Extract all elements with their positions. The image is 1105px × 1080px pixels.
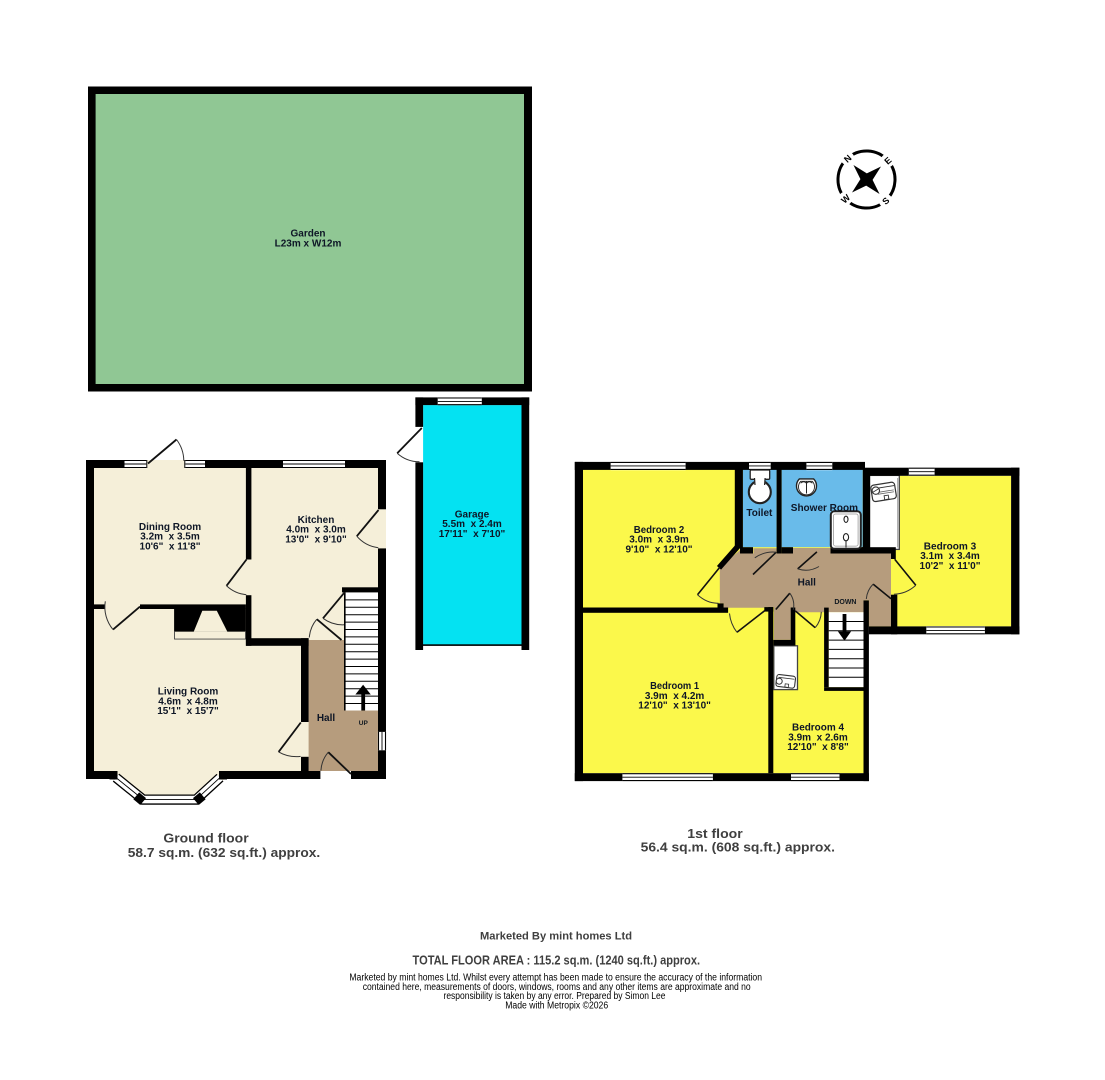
svg-text:Toilet: Toilet — [746, 508, 773, 519]
svg-text:Ground floor: Ground floor — [163, 831, 248, 846]
svg-text:12'10" x 13'10": 12'10" x 13'10" — [638, 701, 711, 712]
svg-text:TOTAL FLOOR AREA : 115.2 sq.m.: TOTAL FLOOR AREA : 115.2 sq.m. (1240 sq.… — [413, 953, 701, 967]
svg-text:Made with Metropix ©2026: Made with Metropix ©2026 — [505, 1001, 608, 1012]
svg-text:17'11" x 7'10": 17'11" x 7'10" — [439, 529, 506, 540]
svg-text:12'10" x 8'8": 12'10" x 8'8" — [787, 742, 849, 753]
svg-text:10'6" x 11'8": 10'6" x 11'8" — [140, 541, 201, 552]
svg-text:Shower Room: Shower Room — [791, 503, 858, 514]
svg-text:Marketed By mint homes Ltd: Marketed By mint homes Ltd — [480, 931, 632, 943]
svg-text:Hall: Hall — [798, 577, 817, 588]
svg-text:15'1" x 15'7": 15'1" x 15'7" — [157, 706, 219, 717]
svg-text:DOWN: DOWN — [834, 599, 856, 606]
svg-text:9'10" x 12'10": 9'10" x 12'10" — [625, 544, 692, 555]
svg-text:L23m x W12m: L23m x W12m — [275, 239, 342, 250]
svg-text:56.4 sq.m. (608 sq.ft.) approx: 56.4 sq.m. (608 sq.ft.) approx. — [641, 840, 835, 855]
svg-text:Hall: Hall — [317, 713, 336, 724]
svg-text:1st floor: 1st floor — [687, 826, 742, 841]
svg-text:13'0" x 9'10": 13'0" x 9'10" — [285, 534, 347, 545]
svg-text:58.7 sq.m. (632 sq.ft.) approx: 58.7 sq.m. (632 sq.ft.) approx. — [128, 845, 321, 860]
svg-text:UP: UP — [359, 720, 369, 727]
svg-text:10'2" x 11'0": 10'2" x 11'0" — [920, 561, 981, 572]
